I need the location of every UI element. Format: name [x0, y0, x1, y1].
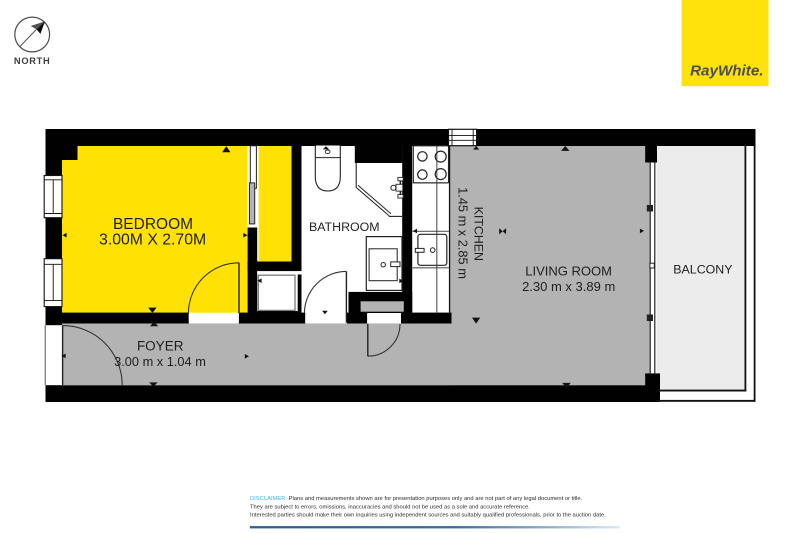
- svg-text:Interested parties should make: Interested parties should make their own…: [250, 513, 606, 519]
- svg-text:BEDROOM: BEDROOM: [113, 216, 193, 233]
- svg-text:RayWhite.: RayWhite.: [690, 63, 763, 80]
- svg-text:FOYER: FOYER: [137, 339, 184, 354]
- svg-text:BALCONY: BALCONY: [673, 262, 732, 276]
- svg-text:DISCLAIMER: Plans and measure: DISCLAIMER: Plans and measurements shown…: [250, 496, 583, 502]
- svg-text:NORTH: NORTH: [14, 56, 51, 66]
- svg-text:3.00 m x 1.04 m: 3.00 m x 1.04 m: [114, 354, 206, 369]
- svg-text:They are subject to errors, om: They are subject to errors, omissions, i…: [250, 504, 530, 510]
- svg-text:KITCHEN: KITCHEN: [471, 207, 485, 261]
- svg-text:LIVING ROOM: LIVING ROOM: [525, 264, 612, 279]
- svg-text:3.00M X 2.70M: 3.00M X 2.70M: [99, 232, 206, 249]
- svg-text:BATHROOM: BATHROOM: [309, 220, 380, 234]
- svg-text:1.45 m x 2.85 m: 1.45 m x 2.85 m: [456, 187, 471, 279]
- svg-text:2.30 m x 3.89 m: 2.30 m x 3.89 m: [522, 279, 615, 294]
